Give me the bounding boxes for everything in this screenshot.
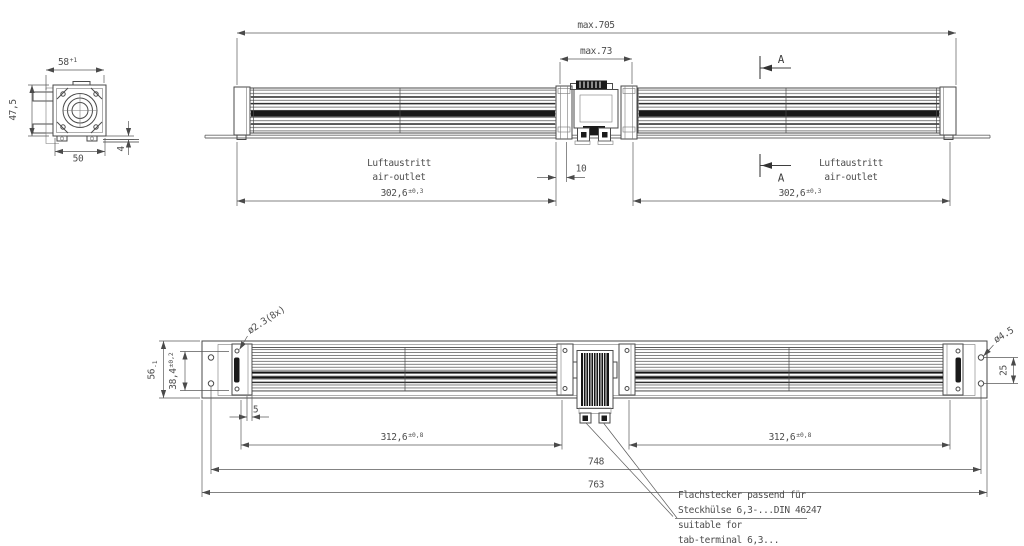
svg-text:Flachstecker passend für: Flachstecker passend für (678, 490, 806, 501)
mount-hole (208, 381, 213, 386)
end-view: 58+1 47,5 50 4 (8, 57, 139, 165)
svg-text:25: 25 (999, 365, 1010, 376)
svg-text:302,6±0,3: 302,6±0,3 (381, 188, 424, 199)
svg-text:ø2.3(8x): ø2.3(8x) (246, 304, 288, 336)
svg-text:tab-terminal 6,3...: tab-terminal 6,3... (678, 535, 779, 546)
dim-motor-gap: 10 (537, 142, 587, 182)
mount-hole (978, 355, 983, 360)
dim-height-left: 47,5 (8, 85, 49, 136)
svg-text:10: 10 (576, 164, 587, 175)
svg-text:Luftaustritt: Luftaustritt (367, 158, 431, 169)
fan-technical-drawing: 58+1 47,5 50 4 (0, 0, 1024, 546)
motor-ribbed-shell (581, 353, 609, 406)
air-outlet-label-left: Luftaustritt air-outlet (367, 158, 431, 183)
section-mark-bottom: A (760, 154, 791, 185)
grille-left (252, 348, 557, 392)
svg-text:A: A (778, 172, 785, 185)
rotor-circles (63, 94, 97, 128)
air-outlet-label-right: Luftaustritt air-outlet (819, 158, 883, 183)
svg-text:Steckhülse 6,3-...DIN 46247: Steckhülse 6,3-...DIN 46247 (678, 505, 822, 516)
svg-text:ø4.5: ø4.5 (992, 325, 1016, 345)
svg-text:302,6±0,3: 302,6±0,3 (779, 188, 822, 199)
callout-mount-hole: ø4.5 (984, 325, 1016, 356)
section-mark-top: A (760, 53, 791, 79)
motor-bottom (557, 344, 635, 423)
svg-text:A: A (778, 53, 785, 66)
callout-screw-hole: ø2.3(8x) (240, 304, 288, 349)
drawing-page: 58+1 47,5 50 4 (0, 0, 1024, 546)
dim-motor-width: max.73 (560, 46, 632, 84)
svg-text:56-1: 56-1 (147, 360, 160, 379)
rotor-right (638, 88, 940, 133)
svg-text:suitable for: suitable for (678, 520, 743, 531)
svg-text:4: 4 (116, 146, 127, 152)
dim-end-offset: 5 (230, 396, 270, 421)
dim-outlet-width: 38,4±0,2 (168, 352, 229, 391)
dim-rotor-right: 312,6±0,8 (629, 400, 950, 450)
end-cap-left (234, 87, 250, 140)
dim-outlet-right: 302,6±0,3 (633, 142, 950, 206)
svg-text:312,6±0,8: 312,6±0,8 (381, 432, 424, 443)
top-tab (73, 82, 90, 86)
svg-text:50: 50 (73, 154, 84, 165)
mounting-tab-top (33, 92, 53, 101)
bearing-bracket-right (943, 344, 963, 395)
svg-text:max.73: max.73 (580, 46, 612, 57)
bracket-plate (46, 88, 53, 133)
dim-width-bottom: 50 (55, 138, 105, 165)
bearing-bracket-left (232, 344, 252, 395)
bottom-view: ø2.3(8x) ø4.5 56-1 38,4±0,2 5 (147, 304, 1019, 546)
dim-plate-offset: 4 (106, 121, 134, 155)
svg-text:air-outlet: air-outlet (824, 172, 877, 183)
mounting-plate-edge-on (205, 135, 990, 138)
svg-text:max.705: max.705 (577, 20, 614, 31)
svg-text:763: 763 (588, 480, 604, 491)
svg-text:748: 748 (588, 457, 605, 468)
grille-right (635, 348, 943, 392)
dim-rotor-left: 312,6±0,8 (241, 400, 562, 450)
svg-text:47,5: 47,5 (8, 99, 19, 120)
mounting-tab-bottom (33, 124, 53, 133)
svg-text:5: 5 (253, 405, 258, 416)
mount-hole (978, 381, 983, 386)
svg-text:312,6±0,8: 312,6±0,8 (769, 432, 812, 443)
svg-text:38,4±0,2: 38,4±0,2 (168, 352, 179, 390)
dim-overall-width: 763 (202, 400, 987, 497)
svg-text:Luftaustritt: Luftaustritt (819, 158, 883, 169)
mount-hole (208, 355, 213, 360)
dim-hole-pitch: 25 (984, 358, 1018, 384)
end-cap-right (940, 87, 956, 140)
svg-text:air-outlet: air-outlet (372, 172, 425, 183)
motor-side (556, 81, 637, 145)
svg-text:58+1: 58+1 (58, 57, 77, 68)
rotor-left (250, 88, 556, 133)
side-view: max.705 max.73 A A Luftaustritt air-outl… (205, 20, 990, 206)
